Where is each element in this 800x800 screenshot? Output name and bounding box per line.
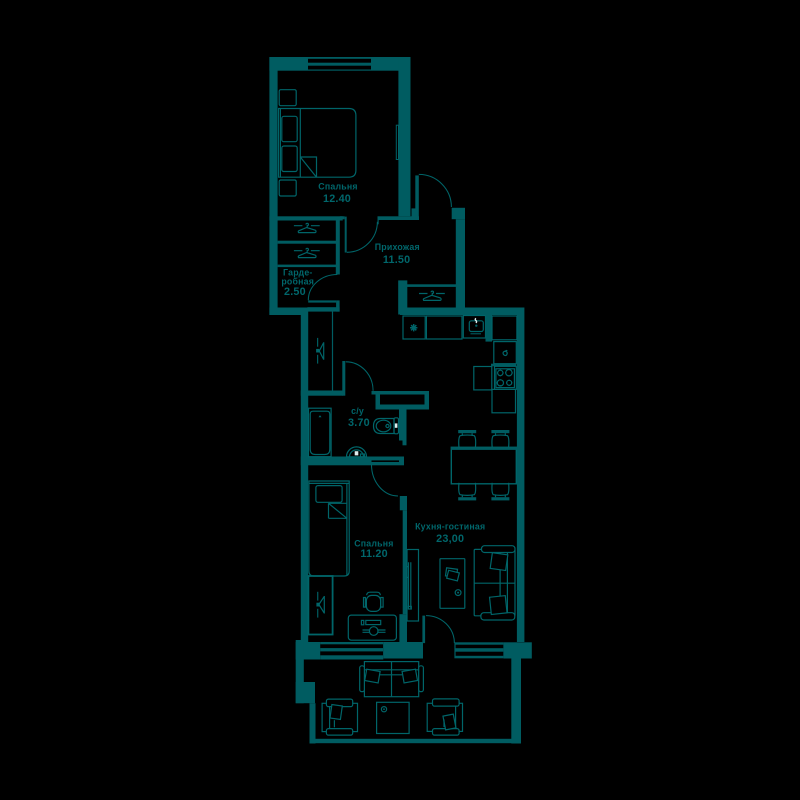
svg-text:2.50: 2.50 — [284, 286, 306, 298]
svg-text:23,00: 23,00 — [436, 533, 464, 545]
svg-text:Прихожая: Прихожая — [375, 242, 420, 252]
svg-text:11.20: 11.20 — [360, 548, 387, 560]
svg-text:3.70: 3.70 — [348, 417, 370, 429]
svg-text:11.50: 11.50 — [383, 254, 410, 266]
svg-text:робная: робная — [281, 276, 314, 286]
svg-text:Спальня: Спальня — [354, 538, 393, 548]
svg-text:12.40: 12.40 — [323, 193, 351, 205]
svg-text:Кухня-гостиная: Кухня-гостиная — [415, 522, 485, 532]
svg-text:Спальня: Спальня — [318, 182, 357, 192]
svg-text:с/у: с/у — [351, 406, 364, 416]
